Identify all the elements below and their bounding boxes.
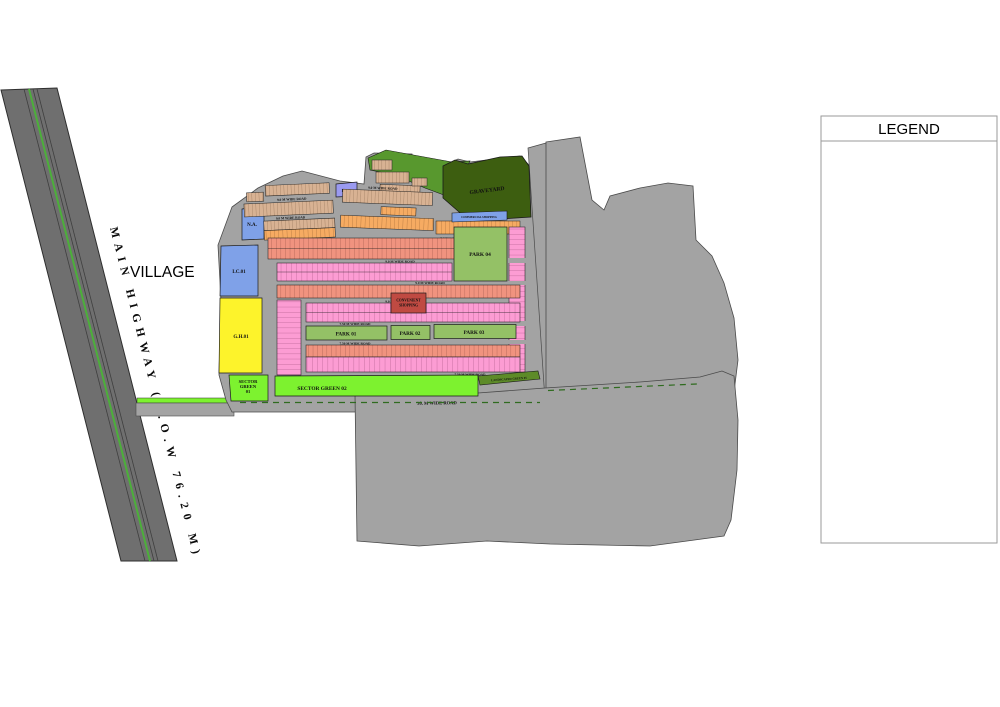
svg-text:01: 01 xyxy=(246,389,251,394)
svg-text:PARK 01: PARK 01 xyxy=(336,332,357,338)
svg-text:LC.01: LC.01 xyxy=(232,270,246,275)
svg-text:G.H.01: G.H.01 xyxy=(233,335,249,340)
svg-text:SHOPPING: SHOPPING xyxy=(399,304,418,308)
svg-text:PARK 02: PARK 02 xyxy=(400,331,421,337)
svg-text:PARK 03: PARK 03 xyxy=(464,330,485,336)
svg-text:COMMERCIAL SHOPPING: COMMERCIAL SHOPPING xyxy=(461,216,497,219)
svg-text:CONVENIENT: CONVENIENT xyxy=(396,299,421,303)
svg-text:9.0 M WIDE ROAD: 9.0 M WIDE ROAD xyxy=(415,281,445,285)
svg-text:SECTOR GREEN 02: SECTOR GREEN 02 xyxy=(297,386,347,392)
svg-text:N.A.: N.A. xyxy=(247,223,257,228)
svg-text:7.50 M WIDE ROAD: 7.50 M WIDE ROAD xyxy=(339,322,371,326)
svg-text:PARK 04: PARK 04 xyxy=(469,252,491,258)
svg-text:VILLAGE: VILLAGE xyxy=(130,264,195,281)
svg-text:LEGEND: LEGEND xyxy=(878,121,940,138)
